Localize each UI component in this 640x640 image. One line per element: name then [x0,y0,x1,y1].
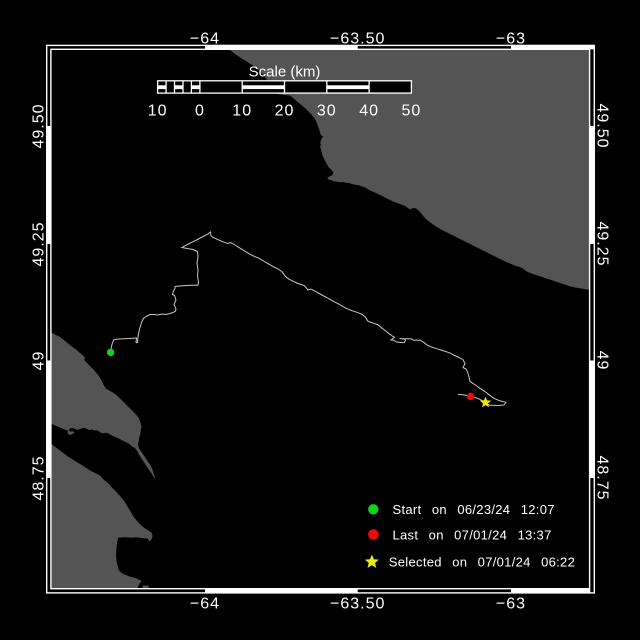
svg-text:20: 20 [275,103,295,120]
svg-text:−63: −63 [496,30,526,47]
svg-text:−64: −64 [190,596,220,613]
svg-text:Scale (km): Scale (km) [249,64,321,81]
svg-text:30: 30 [317,103,337,120]
svg-text:−63.50: −63.50 [330,30,385,47]
svg-text:0: 0 [195,103,205,120]
svg-text:Start on 06/23/24 12:07: Start on 06/23/24 12:07 [393,502,555,517]
svg-text:40: 40 [359,103,379,120]
svg-text:48.75: 48.75 [30,455,47,500]
svg-text:49.50: 49.50 [594,103,611,148]
svg-text:48.75: 48.75 [594,455,611,500]
svg-text:49: 49 [30,351,47,371]
svg-text:50: 50 [402,103,422,120]
svg-text:49.25: 49.25 [30,221,47,266]
svg-text:10: 10 [232,103,252,120]
svg-text:−63.50: −63.50 [330,596,385,613]
svg-text:10: 10 [148,103,168,120]
svg-text:49.50: 49.50 [30,103,47,148]
svg-text:49: 49 [594,351,611,371]
svg-text:Last on 07/01/24 13:37: Last on 07/01/24 13:37 [393,527,552,542]
svg-text:−63: −63 [496,596,526,613]
svg-text:Selected on 07/01/24 06:22: Selected on 07/01/24 06:22 [389,554,575,569]
svg-text:−64: −64 [190,30,220,47]
svg-text:49.25: 49.25 [594,221,611,266]
